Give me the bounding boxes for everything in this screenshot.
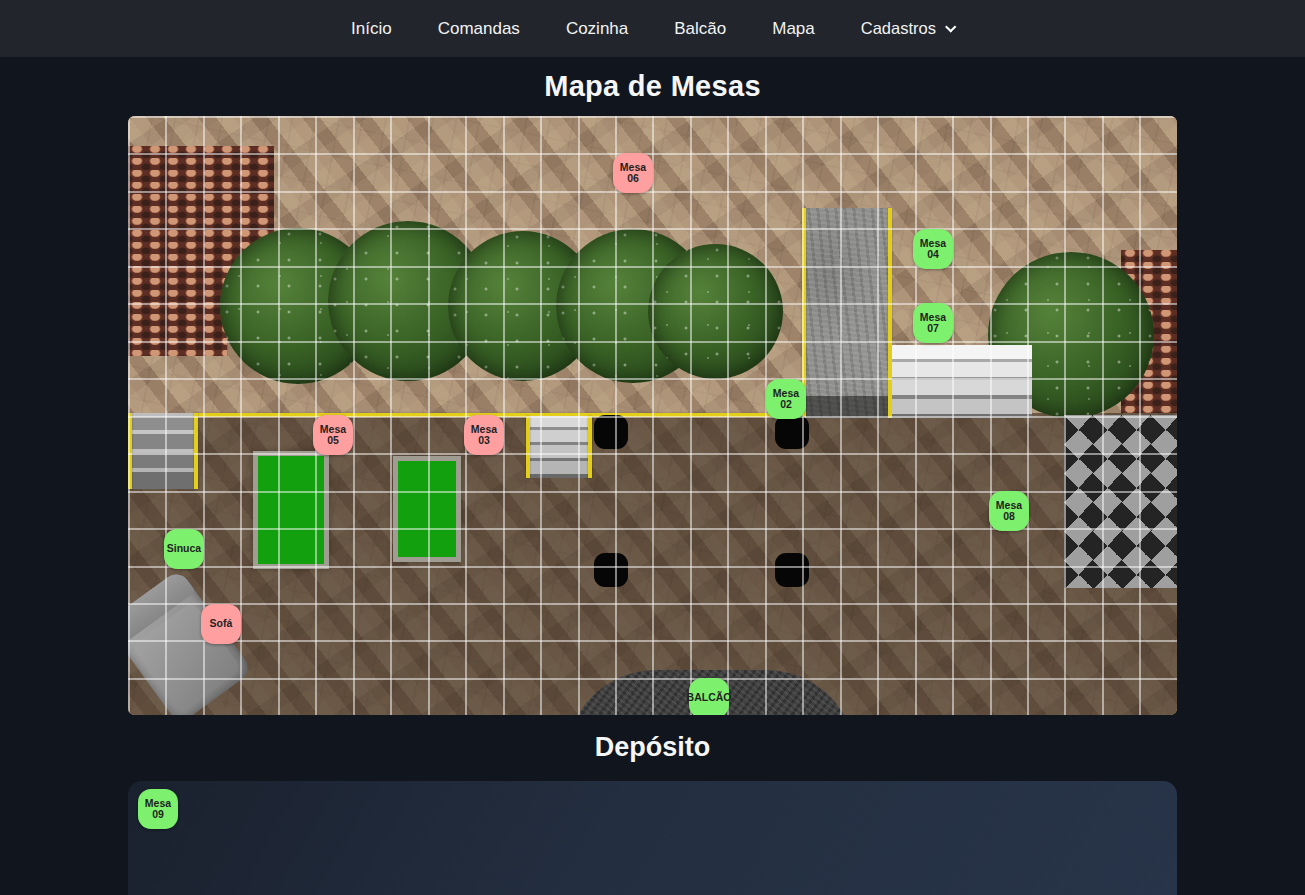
nav-item-mapa[interactable]: Mapa [772, 19, 815, 39]
map-tables-layer: Mesa 06Mesa 04Mesa 07Mesa 02Mesa 05Mesa … [128, 116, 1177, 715]
nav-item-cozinha[interactable]: Cozinha [566, 19, 628, 39]
table-badge-mesa-02[interactable]: Mesa 02 [766, 379, 806, 419]
page-title: Mapa de Mesas [0, 70, 1305, 103]
table-map: Mesa 06Mesa 04Mesa 07Mesa 02Mesa 05Mesa … [128, 116, 1177, 715]
deposito-area: Mesa 09 [128, 781, 1177, 895]
table-badge-mesa-08[interactable]: Mesa 08 [989, 491, 1029, 531]
table-badge-mesa-03[interactable]: Mesa 03 [464, 415, 504, 455]
deposito-title: Depósito [0, 732, 1305, 763]
table-badge-balcao[interactable]: BALCÃO [689, 678, 729, 715]
chevron-down-icon [945, 21, 956, 32]
table-badge-mesa-07[interactable]: Mesa 07 [913, 303, 953, 343]
table-badge-mesa-06[interactable]: Mesa 06 [613, 153, 653, 193]
table-badge-sinuca[interactable]: Sinuca [164, 529, 204, 569]
table-badge-mesa-04[interactable]: Mesa 04 [913, 229, 953, 269]
nav-item-balcao[interactable]: Balcão [674, 19, 726, 39]
nav-item-comandas[interactable]: Comandas [438, 19, 520, 39]
deposito-tables-layer: Mesa 09 [128, 781, 1177, 895]
table-badge-mesa-05[interactable]: Mesa 05 [313, 415, 353, 455]
nav-dropdown-cadastros[interactable]: Cadastros [861, 19, 954, 38]
nav-item-inicio[interactable]: Início [351, 19, 392, 39]
nav-dropdown-label: Cadastros [861, 19, 936, 38]
table-badge-sofa[interactable]: Sofá [201, 604, 241, 644]
table-badge-mesa-09[interactable]: Mesa 09 [138, 789, 178, 829]
top-navbar: InícioComandasCozinhaBalcãoMapa Cadastro… [0, 0, 1305, 57]
